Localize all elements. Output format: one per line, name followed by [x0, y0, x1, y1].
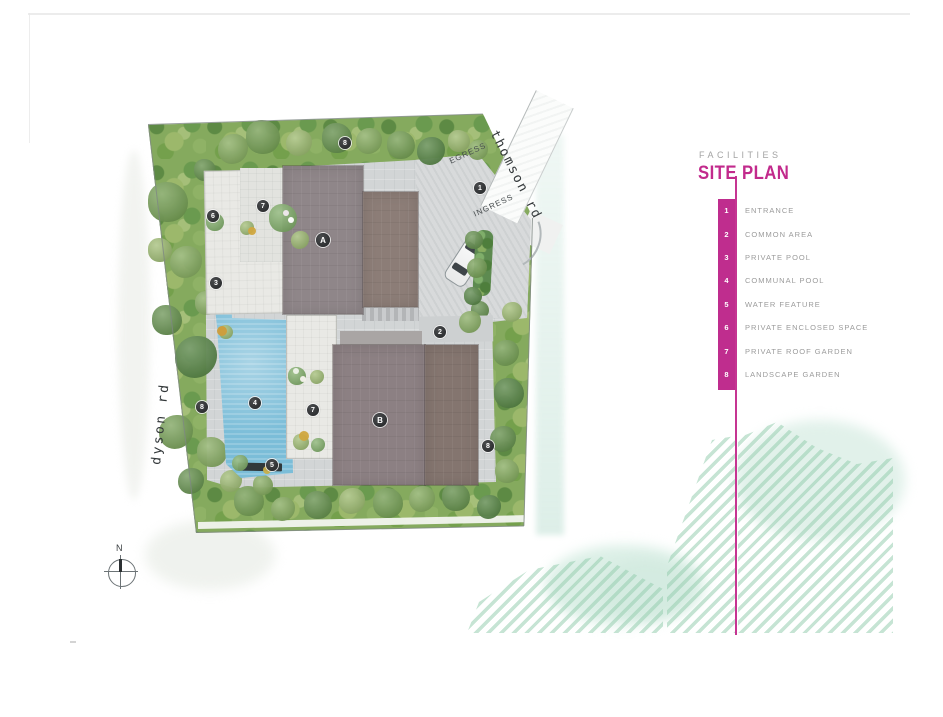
- flower-accent: [299, 431, 309, 441]
- building-b-roof-east: [425, 345, 478, 485]
- shrub: [464, 287, 482, 305]
- legend-item: 5WATER FEATURE: [718, 293, 938, 316]
- marker-entrance: 1: [474, 182, 486, 194]
- tree: [442, 483, 470, 511]
- building-b-label: B: [373, 413, 387, 427]
- legend-item-label: PRIVATE POOL: [745, 253, 811, 262]
- scan-edge-left: [29, 13, 30, 143]
- tree: [246, 120, 280, 154]
- legend-eyebrow: FACILITIES: [699, 150, 782, 160]
- steps: [362, 308, 419, 321]
- legend-item: 7PRIVATE ROOF GARDEN: [718, 339, 938, 362]
- watercolor-wash: [536, 135, 564, 535]
- building-a-label: A: [316, 233, 330, 247]
- tree: [253, 475, 273, 495]
- common-area-pad: [419, 315, 493, 342]
- legend-item-label: COMMON AREA: [745, 230, 813, 239]
- legend-item-number: 3: [718, 253, 735, 262]
- tree: [373, 488, 403, 518]
- flower-accent: [283, 210, 289, 216]
- scan-mark: [70, 641, 76, 643]
- tree: [148, 238, 172, 262]
- site-plan-page: thomson rd dyson rd EGRESS INGRESS 8 6 7…: [0, 0, 943, 717]
- legend-item-label: PRIVATE ENCLOSED SPACE: [745, 323, 868, 332]
- legend-item-label: LANDSCAPE GARDEN: [745, 370, 841, 379]
- tree: [304, 491, 332, 519]
- marker-water-feature: 5: [266, 459, 278, 471]
- legend-item-number: 1: [718, 206, 735, 215]
- tree: [495, 459, 519, 483]
- flower-accent: [293, 368, 299, 374]
- legend-item-label: ENTRANCE: [745, 206, 794, 215]
- marker-landscape-garden-left: 8: [196, 401, 208, 413]
- legend-item: 1ENTRANCE: [718, 199, 938, 222]
- legend-item-number: 4: [718, 276, 735, 285]
- compass-north-label: N: [116, 543, 123, 553]
- marker-private-roof-garden-upper: 7: [257, 200, 269, 212]
- shrub: [465, 231, 483, 249]
- legend-item-number: 2: [718, 230, 735, 239]
- tree: [152, 305, 182, 335]
- marker-landscape-garden-right: 8: [482, 440, 494, 452]
- watercolor-wash: [118, 150, 150, 500]
- flower-accent: [217, 326, 227, 336]
- marker-communal-pool: 4: [249, 397, 261, 409]
- building-b-pad: [340, 331, 422, 345]
- legend-item: 4COMMUNAL POOL: [718, 269, 938, 292]
- legend-item: 6PRIVATE ENCLOSED SPACE: [718, 316, 938, 339]
- legend-item: 3PRIVATE POOL: [718, 246, 938, 269]
- building-a-roof-east: [363, 192, 418, 307]
- legend-item: 8LANDSCAPE GARDEN: [718, 363, 938, 386]
- legend-item-number: 5: [718, 300, 735, 309]
- legend-item-number: 7: [718, 347, 735, 356]
- marker-landscape-garden-top: 8: [339, 137, 351, 149]
- tree: [387, 131, 415, 159]
- tree: [148, 182, 188, 222]
- legend-title: SITE PLAN: [698, 163, 789, 185]
- marker-common-area: 2: [434, 326, 446, 338]
- flower-accent: [300, 376, 306, 382]
- car-rear-window: [451, 262, 468, 277]
- marker-private-pool: 3: [210, 277, 222, 289]
- decor-leaf-hatch: [665, 434, 736, 634]
- tree: [197, 437, 227, 467]
- flower-accent: [288, 217, 294, 223]
- legend-item-number: 6: [718, 323, 735, 332]
- compass-icon: [108, 559, 136, 587]
- legend-items: 1ENTRANCE 2COMMON AREA 3PRIVATE POOL 4CO…: [718, 199, 938, 386]
- legend-item: 2COMMON AREA: [718, 222, 938, 245]
- legend-item-label: COMMUNAL POOL: [745, 276, 824, 285]
- legend-item-number: 8: [718, 370, 735, 379]
- marker-private-roof-garden-lower: 7: [307, 404, 319, 416]
- marker-private-enclosed-space: 6: [207, 210, 219, 222]
- legend-item-label: WATER FEATURE: [745, 300, 821, 309]
- compass-needle: [119, 559, 122, 572]
- legend-item-label: PRIVATE ROOF GARDEN: [745, 347, 853, 356]
- scan-edge-top: [28, 13, 910, 15]
- tree: [494, 378, 524, 408]
- flower-accent: [248, 227, 256, 235]
